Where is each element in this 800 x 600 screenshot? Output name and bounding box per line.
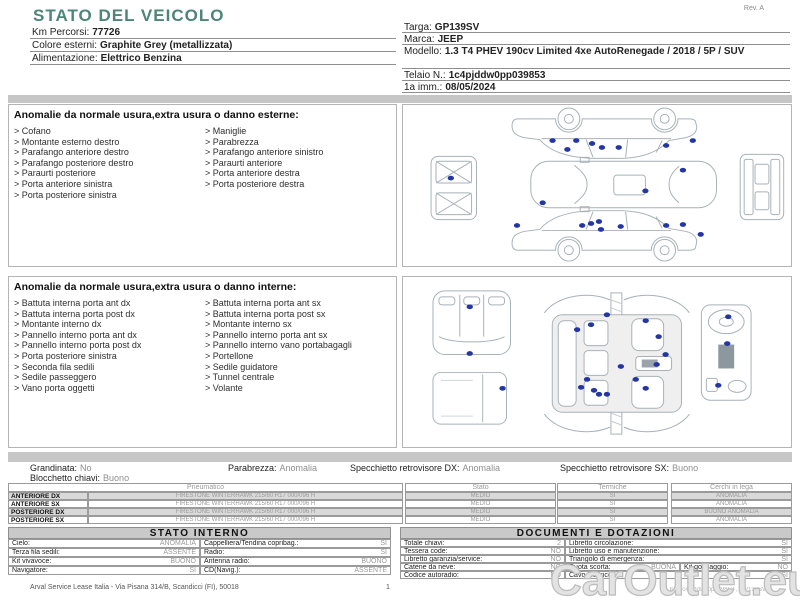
tyre-cerchi: ANOMALIA <box>671 500 792 508</box>
tyre-stato: MEDIO <box>405 492 556 500</box>
damage-dot <box>604 312 610 317</box>
summary-label: Grandinata: <box>30 463 77 473</box>
interior-list-col2: Battuta interna porta ant sx Battuta int… <box>205 298 391 393</box>
cell-value: SI <box>380 540 387 547</box>
cabin-plan-view <box>544 293 689 434</box>
info-row-telaio: Telaio N.:1c4pjddw0pp039853 <box>402 69 790 81</box>
tyre-spec: FIRESTONE WINTERHAWK 215/60 R17 000/096 … <box>88 508 403 516</box>
damage-dot <box>724 341 730 346</box>
revision-label: Rev. A <box>744 5 764 12</box>
info-value: Elettrico Benzina <box>101 53 182 64</box>
tyre-col-header: Pneumatico <box>8 483 403 492</box>
stato-interno-cell: CD(Navig.):ASSENTE <box>200 566 391 575</box>
documenti-cell: Tessera code:NO <box>400 547 565 555</box>
page-title: STATO DEL VEICOLO <box>33 6 224 26</box>
documenti-cell: Catene da neve:NO <box>400 563 565 571</box>
stato-interno-cell: Kit vivavoce:BUONO <box>8 557 200 566</box>
tyre-cerchi: ANOMALIA <box>671 492 792 500</box>
damage-item: Seconda fila sedili <box>14 362 200 373</box>
cell-value: SI <box>781 548 788 555</box>
stato-interno-cell: Cielo:ANOMALIA <box>8 539 200 548</box>
cell-label: Libretto garanzia/service: <box>404 556 482 563</box>
info-value: 77726 <box>92 27 120 38</box>
stato-interno-cell: Terza fila sedili:ASSENTE <box>8 548 200 557</box>
interior-list-col1: Battuta interna porta ant dx Battuta int… <box>14 298 200 393</box>
damage-item: Pannello interno porta post dx <box>14 340 200 351</box>
cell-label: Cappelliera/Tendina copribag.: <box>204 540 299 547</box>
damage-item: Montante esterno destro <box>14 137 200 148</box>
damage-item: Porta posteriore sinistra <box>14 351 200 362</box>
car-plan-view <box>531 157 717 211</box>
info-value: 1.3 T4 PHEV 190cv Limited 4xe AutoRenega… <box>445 46 745 57</box>
summary-value: Anomalia <box>463 463 501 473</box>
documenti-cell: Libretto uso e manutenzione:SI <box>565 547 792 555</box>
damage-item: Parafango anteriore sinistro <box>205 147 391 158</box>
damage-dot <box>663 143 669 148</box>
cell-label: CD(Navig.): <box>204 567 241 574</box>
damage-dot <box>643 318 649 323</box>
summary-value: No <box>80 463 92 473</box>
tyre-termiche: SI <box>557 508 668 516</box>
summary-value: Buono <box>103 473 129 483</box>
car-front-view <box>431 156 476 219</box>
damage-item: Battuta interna porta ant sx <box>205 298 391 309</box>
damage-dot <box>662 352 668 357</box>
tyre-col-header: Termiche <box>557 483 668 492</box>
info-value: JEEP <box>438 34 464 45</box>
documenti-cell: Libretto circolazione:SI <box>565 539 792 547</box>
cell-value: ANOMALIA <box>160 540 196 547</box>
exterior-damage-svg <box>403 105 791 266</box>
summary-label: Specchietto retrovisore SX: <box>560 463 669 473</box>
footer-company: Arval Service Lease Italia - Via Pisana … <box>30 584 239 591</box>
stato-interno-title: STATO INTERNO <box>8 527 391 539</box>
interior-anomalies-panel: Anomalie da normale usura,extra usura o … <box>8 276 397 448</box>
damage-dot <box>599 145 605 150</box>
damage-item: Sedile guidatore <box>205 362 391 373</box>
cell-label: Radio: <box>204 549 224 556</box>
cell-value: ASSENTE <box>163 549 196 556</box>
damage-dot <box>584 377 590 382</box>
damage-item: Battuta interna porta post dx <box>14 309 200 320</box>
damage-dot <box>578 385 584 390</box>
exterior-anomalies-panel: Anomalie da normale usura,extra usura o … <box>8 104 397 267</box>
tyre-stato: MEDIO <box>405 500 556 508</box>
cell-label: Libretto uso e manutenzione: <box>569 548 659 555</box>
tyre-stato: MEDIO <box>405 516 556 524</box>
info-label: Targa: <box>404 22 432 33</box>
damage-dot <box>574 327 580 332</box>
interior-damage-svg <box>403 277 791 447</box>
damage-dot <box>579 223 585 228</box>
damage-item: Paraurti posteriore <box>14 168 200 179</box>
summary-specchietto-sx: Specchietto retrovisore SX:Buono <box>560 463 698 473</box>
exterior-anomalies-header: Anomalie da normale usura,extra usura o … <box>9 105 396 123</box>
damage-item: Pannello interno porta ant dx <box>14 330 200 341</box>
cell-label: Kit vivavoce: <box>12 558 51 565</box>
damage-item: Pannello interno porta ant sx <box>205 330 391 341</box>
documenti-title: DOCUMENTI E DOTAZIONI <box>400 527 792 539</box>
documenti-cell: Codice autoradio:NO <box>400 571 565 579</box>
info-label: Km Percorsi: <box>32 27 89 38</box>
info-label: Alimentazione: <box>32 53 98 64</box>
damage-dot <box>588 322 594 327</box>
damage-dot <box>448 176 454 181</box>
damage-dot <box>690 138 696 143</box>
damage-dot <box>598 227 604 232</box>
exterior-list-col1: Cofano Montante esterno destro Parafango… <box>14 126 200 200</box>
damage-dot <box>588 221 594 226</box>
exterior-diagram-panel <box>402 104 792 267</box>
damage-dot <box>715 383 721 388</box>
damage-dot <box>499 386 505 391</box>
summary-value: Anomalia <box>280 463 318 473</box>
info-row-km: Km Percorsi:77726 <box>30 26 396 39</box>
stato-interno-cell: Antenna radio:BUONO <box>200 557 391 566</box>
damage-dot <box>643 386 649 391</box>
dashboard-view <box>701 305 751 400</box>
interior-anomalies-header: Anomalie da normale usura,extra usura o … <box>9 277 396 295</box>
damage-dot <box>616 145 622 150</box>
tyre-col-header: Cerchi in lega <box>671 483 792 492</box>
damage-item: Porta posteriore destra <box>205 179 391 190</box>
tyre-spec: FIRESTONE WINTERHAWK 215/60 R17 000/096 … <box>88 500 403 508</box>
tyre-termiche: SI <box>557 492 668 500</box>
info-label: Modello: <box>404 46 442 57</box>
summary-blocchetto-chiavi: Blocchetto chiavi:Buono <box>30 473 129 483</box>
tyre-spec: FIRESTONE WINTERHAWK 215/60 R17 000/096 … <box>88 492 403 500</box>
tyre-cerchi: ANOMALIA <box>671 516 792 524</box>
damage-item: Parabrezza <box>205 137 391 148</box>
damage-dot <box>618 224 624 229</box>
damage-dot <box>591 388 597 393</box>
damage-item: Battuta interna porta post sx <box>205 309 391 320</box>
cell-label: Terza fila sedili: <box>12 549 60 556</box>
stato-interno-cell: Navigatore:SI <box>8 566 200 575</box>
cell-label: Cielo: <box>12 540 30 547</box>
summary-specchietto-dx: Specchietto retrovisore DX:Anomalia <box>350 463 500 473</box>
damage-item: Parafango posteriore destro <box>14 158 200 169</box>
damage-item: Battuta interna porta ant dx <box>14 298 200 309</box>
tyre-position: POSTERIORE SX <box>8 516 88 524</box>
damage-dot <box>540 200 546 205</box>
damage-item: Vano porta oggetti <box>14 383 200 394</box>
car-rear-view <box>740 154 783 219</box>
damage-item: Parafango anteriore destro <box>14 147 200 158</box>
damage-item: Pannello interno vano portabagagli <box>205 340 391 351</box>
summary-label: Specchietto retrovisore DX: <box>350 463 460 473</box>
caroutlet-watermark: CarOutlet.eu <box>550 556 800 600</box>
damage-item: Montante interno dx <box>14 319 200 330</box>
info-value: 08/05/2024 <box>445 82 495 93</box>
documenti-cell: Totale chiavi:2 <box>400 539 565 547</box>
damage-dot <box>698 232 704 237</box>
cell-label: Catene da neve: <box>404 564 455 571</box>
damage-dot <box>549 138 555 143</box>
cell-label: Antenna radio: <box>204 558 250 565</box>
damage-dot <box>596 392 602 397</box>
damage-item: Cofano <box>14 126 200 137</box>
car-side-view-bottom <box>512 211 697 261</box>
cell-value: BUONO <box>170 558 196 565</box>
summary-label: Parabrezza: <box>228 463 277 473</box>
damage-dot <box>642 189 648 194</box>
info-row-targa: Targa:GP139SV <box>402 21 790 33</box>
cell-label: Codice autoradio: <box>404 572 459 579</box>
damage-item: Paraurti anteriore <box>205 158 391 169</box>
info-row-immatricolazione: 1a imm.:08/05/2024 <box>402 81 790 93</box>
vehicle-condition-report: STATO DEL VEICOLO Rev. A Km Percorsi:777… <box>0 0 800 600</box>
damage-dot <box>467 351 473 356</box>
cell-label: Libretto circolazione: <box>569 540 633 547</box>
damage-dot <box>725 314 731 319</box>
damage-item: Tunnel centrale <box>205 372 391 383</box>
damage-item: Porta anteriore sinistra <box>14 179 200 190</box>
cell-value: SI <box>781 540 788 547</box>
tyre-position: ANTERIORE SX <box>8 500 88 508</box>
info-row-marca: Marca:JEEP <box>402 33 790 45</box>
info-value: GP139SV <box>435 22 479 33</box>
info-row-modello: Modello:1.3 T4 PHEV 190cv Limited 4xe Au… <box>402 45 790 69</box>
damage-dot <box>564 147 570 152</box>
damage-dot <box>604 392 610 397</box>
exterior-list-col2: Maniglie Parabrezza Parafango anteriore … <box>205 126 391 190</box>
divider-bar <box>8 452 792 462</box>
summary-label: Blocchetto chiavi: <box>30 473 100 483</box>
damage-dot <box>655 334 661 339</box>
stato-interno-table: STATO INTERNO Cielo:ANOMALIA Cappelliera… <box>8 527 391 575</box>
damage-item: Montante interno sx <box>205 319 391 330</box>
damage-item: Sedile passeggero <box>14 372 200 383</box>
info-label: Marca: <box>404 34 435 45</box>
damage-dot <box>663 223 669 228</box>
cell-label: Navigatore: <box>12 567 48 574</box>
damage-dot <box>589 141 595 146</box>
tyre-table: Pneumatico Stato Termiche Cerchi in lega… <box>0 483 800 525</box>
damage-item: Porta posteriore sinistra <box>14 190 200 201</box>
info-value: 1c4pjddw0pp039853 <box>449 70 546 81</box>
damage-item: Portellone <box>205 351 391 362</box>
cell-value: NO <box>551 548 562 555</box>
damage-dot <box>573 138 579 143</box>
info-value: Graphite Grey (metallizzata) <box>100 40 232 51</box>
tyre-termiche: SI <box>557 516 668 524</box>
stato-interno-cell: Radio:SI <box>200 548 391 557</box>
info-row-alimentazione: Alimentazione:Elettrico Benzina <box>30 52 396 65</box>
summary-grandinata: Grandinata:No <box>30 463 92 473</box>
interior-diagram-panel <box>402 276 792 448</box>
summary-parabrezza: Parabrezza:Anomalia <box>228 463 317 473</box>
damage-item: Porta anteriore destra <box>205 168 391 179</box>
cell-value: ASSENTE <box>354 567 387 574</box>
damage-item: Maniglie <box>205 126 391 137</box>
summary-value: Buono <box>672 463 698 473</box>
cell-value: SI <box>189 567 196 574</box>
documenti-cell: Libretto garanzia/service:NO <box>400 555 565 563</box>
damage-dot <box>633 377 639 382</box>
info-label: Colore esterni: <box>32 40 97 51</box>
car-side-view-top <box>512 108 697 158</box>
stato-interno-cell: Cappelliera/Tendina copribag.:SI <box>200 539 391 548</box>
cell-value: SI <box>380 549 387 556</box>
damage-dot <box>618 364 624 369</box>
info-label: Telaio N.: <box>404 70 446 81</box>
damage-dot <box>596 219 602 224</box>
tyre-spec: FIRESTONE WINTERHAWK 215/60 R17 000/096 … <box>88 516 403 524</box>
cell-value: BUONO <box>361 558 387 565</box>
tyre-position: ANTERIORE DX <box>8 492 88 500</box>
cell-label: Totale chiavi: <box>404 540 444 547</box>
damage-dot <box>467 304 473 309</box>
cell-value: 2 <box>557 540 561 547</box>
tyre-termiche: SI <box>557 500 668 508</box>
rear-bench-view <box>433 291 511 355</box>
trunk-view <box>433 372 507 424</box>
damage-dot <box>653 362 659 367</box>
damage-dot <box>680 168 686 173</box>
damage-item: Volante <box>205 383 391 394</box>
info-label: 1a imm.: <box>404 82 442 93</box>
tyre-stato: MEDIO <box>405 508 556 516</box>
footer-page-number: 1 <box>386 584 390 591</box>
damage-dot <box>680 222 686 227</box>
damage-dot <box>514 223 520 228</box>
tyre-col-header: Stato <box>405 483 556 492</box>
tyre-cerchi: BUONO ANOMALIA <box>671 508 792 516</box>
cell-label: Tessera code: <box>404 548 448 555</box>
divider-bar <box>8 95 792 103</box>
tyre-position: POSTERIORE DX <box>8 508 88 516</box>
info-row-colore: Colore esterni:Graphite Grey (metallizza… <box>30 39 396 52</box>
